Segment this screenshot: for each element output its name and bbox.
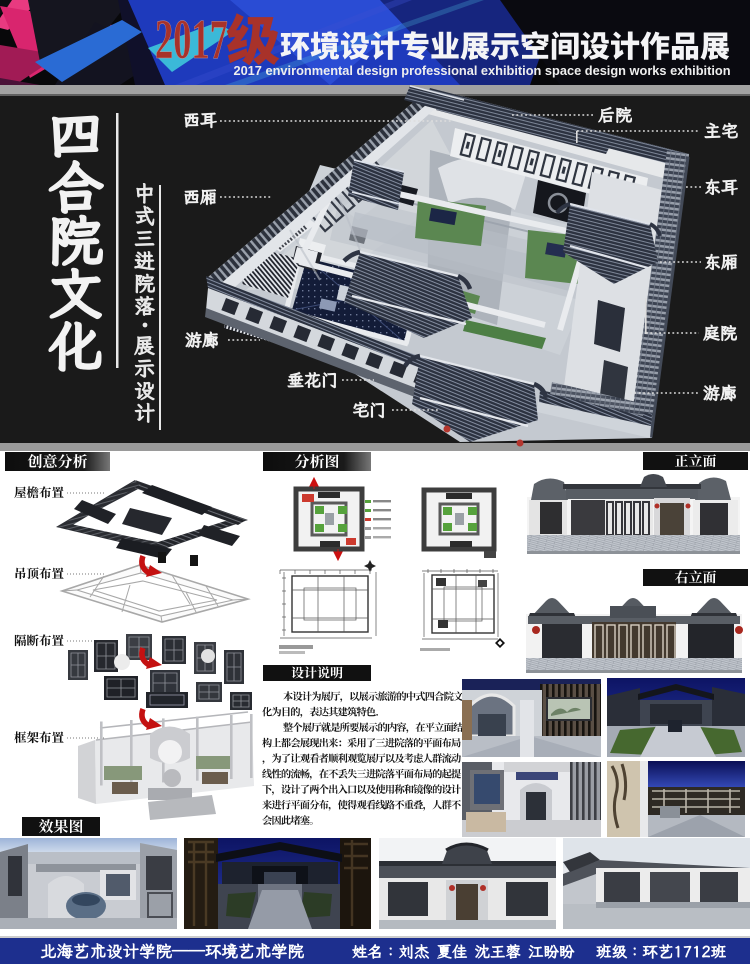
svg-text:2017 environmental design prof: 2017 environmental design professional e…: [233, 63, 730, 78]
svg-text:2017: 2017: [155, 9, 228, 71]
